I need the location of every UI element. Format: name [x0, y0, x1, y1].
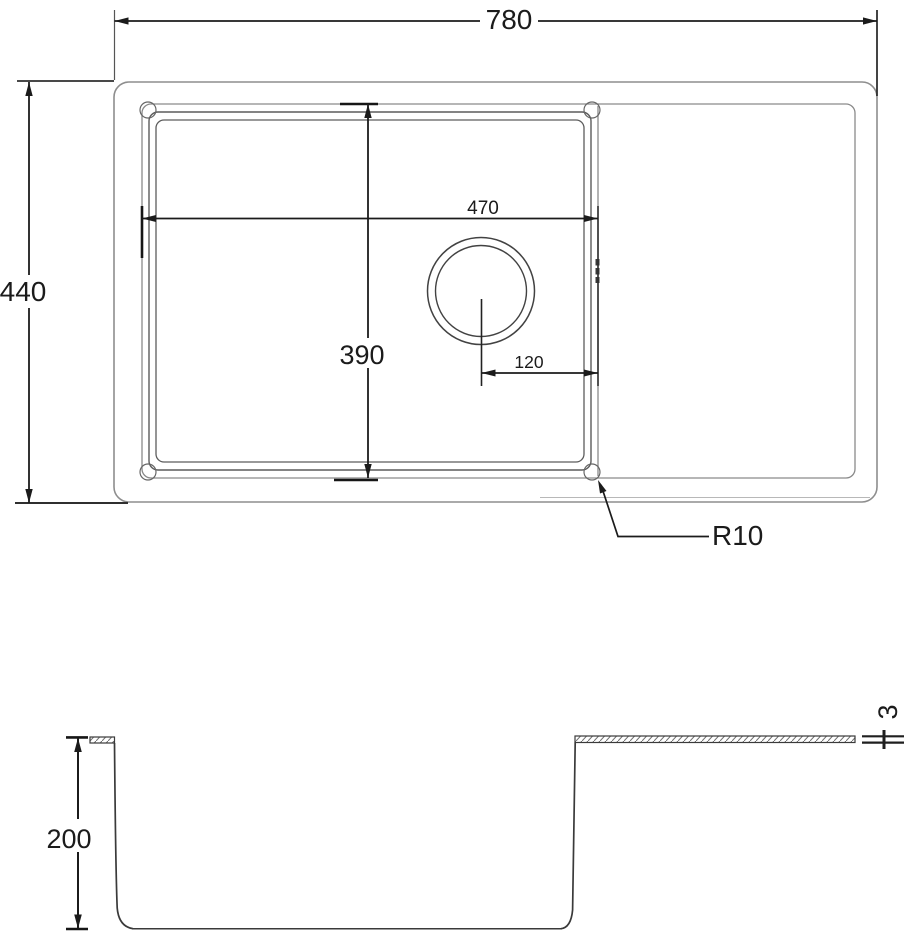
arrowhead-bottom: [25, 489, 32, 503]
arrowhead-top: [364, 104, 371, 118]
edge-thickness-dimension: 3: [862, 704, 904, 749]
bowl-rim-outer-line: [149, 112, 591, 470]
corner-radius-callout: R10: [598, 480, 763, 551]
drain-offset-dimension: 120: [482, 351, 599, 377]
overall-width-label: 780: [486, 4, 533, 35]
section-view: 200 3: [45, 704, 904, 929]
bowl-rim-inner-line: [156, 120, 584, 462]
bowl-right-wall: [561, 743, 575, 929]
bowl-inner-depth-dimension: 200: [45, 737, 93, 929]
arrowhead-top: [74, 738, 82, 752]
plan-view: 780 440 470: [0, 4, 877, 551]
arrowhead-right: [863, 17, 877, 24]
arrowhead-bottom: [74, 915, 82, 929]
arrowhead-left: [482, 370, 496, 377]
bowl-inner-depth-label: 200: [46, 824, 91, 854]
leader-arrowhead: [598, 480, 607, 494]
drain-offset-label: 120: [514, 352, 543, 372]
left-rim-section: [90, 737, 115, 743]
overall-depth-dimension: 440: [0, 81, 128, 503]
sink-outer-edge: [114, 82, 877, 502]
arrowhead-top: [25, 82, 32, 96]
bowl-depth-label: 390: [339, 340, 384, 370]
overall-depth-label: 440: [0, 276, 46, 307]
arrowhead-bottom: [364, 464, 371, 478]
bowl-width-label: 470: [467, 198, 499, 219]
arrowhead-left: [115, 17, 129, 24]
bowl-depth-dimension: 390: [334, 104, 387, 480]
rim-inner-boundary: [142, 104, 855, 478]
edge-thickness-label: 3: [873, 704, 903, 719]
drainboard-section: [575, 736, 855, 743]
sink-technical-drawing: 780 440 470: [0, 0, 904, 936]
leader-line: [601, 485, 709, 537]
bowl-left-wall: [115, 743, 134, 929]
corner-radius-label: R10: [712, 520, 763, 551]
